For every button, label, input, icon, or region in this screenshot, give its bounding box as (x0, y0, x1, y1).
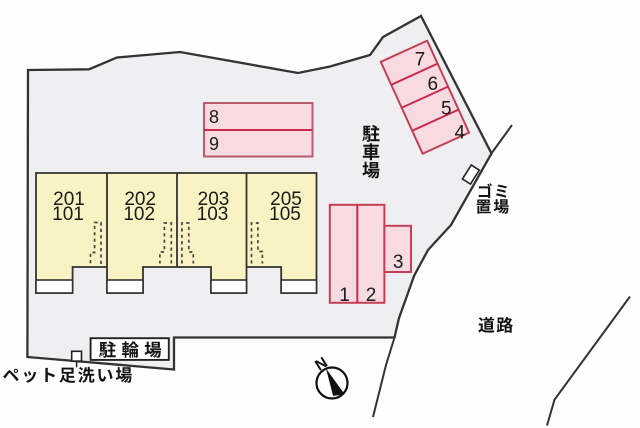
svg-text:8: 8 (209, 107, 219, 127)
svg-text:6: 6 (428, 74, 439, 95)
svg-text:105: 105 (269, 204, 301, 225)
svg-text:102: 102 (123, 204, 155, 225)
svg-text:9: 9 (209, 134, 219, 154)
svg-text:101: 101 (52, 204, 84, 225)
svg-text:2: 2 (366, 285, 377, 306)
svg-text:103: 103 (197, 204, 229, 225)
svg-text:1: 1 (339, 285, 350, 306)
svg-text:4: 4 (455, 122, 466, 143)
svg-text:7: 7 (415, 50, 426, 71)
svg-text:3: 3 (393, 252, 404, 273)
svg-text:5: 5 (441, 99, 452, 120)
